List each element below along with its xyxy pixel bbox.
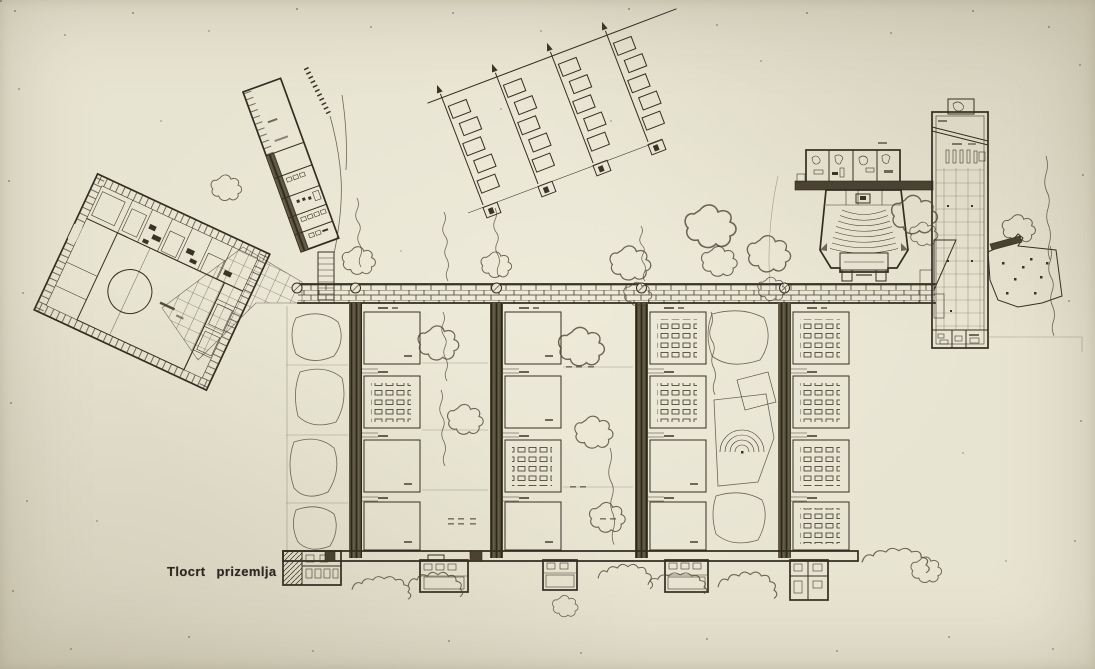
sanitary-blocks — [283, 551, 828, 600]
classrooms-wing-1 — [362, 307, 420, 550]
classrooms-wing-2 — [503, 307, 561, 550]
floor-plan-drawing — [0, 0, 1095, 669]
wing-corridor-4 — [778, 303, 791, 558]
annex-building — [243, 78, 339, 251]
paved-terrace — [162, 247, 302, 360]
classrooms-wing-3 — [648, 307, 706, 550]
dressing-rooms-block — [806, 142, 900, 182]
open-air-classrooms — [428, 9, 677, 219]
main-corridor — [292, 270, 935, 303]
plan-caption: Tlocrt prizemlja — [167, 564, 276, 579]
retaining-wall — [306, 68, 347, 254]
gym-floor-grid — [936, 168, 984, 330]
sanitary-block-2 — [543, 560, 577, 590]
auditorium-building — [795, 99, 1082, 352]
classrooms-wing-4 — [791, 307, 849, 550]
trees-south — [352, 548, 942, 616]
link-corridor — [795, 181, 933, 190]
wing-corridor-2 — [490, 303, 503, 558]
scanned-floor-plan-page: Tlocrt prizemlja — [0, 0, 1095, 669]
sanitary-block-4 — [790, 560, 828, 600]
wing-corridor-3 — [635, 303, 648, 558]
sanitary-block-3 — [665, 560, 708, 592]
gym-wing — [932, 99, 1082, 352]
paper-specks — [0, 0, 2, 2]
wing-corridor-1 — [349, 303, 362, 558]
